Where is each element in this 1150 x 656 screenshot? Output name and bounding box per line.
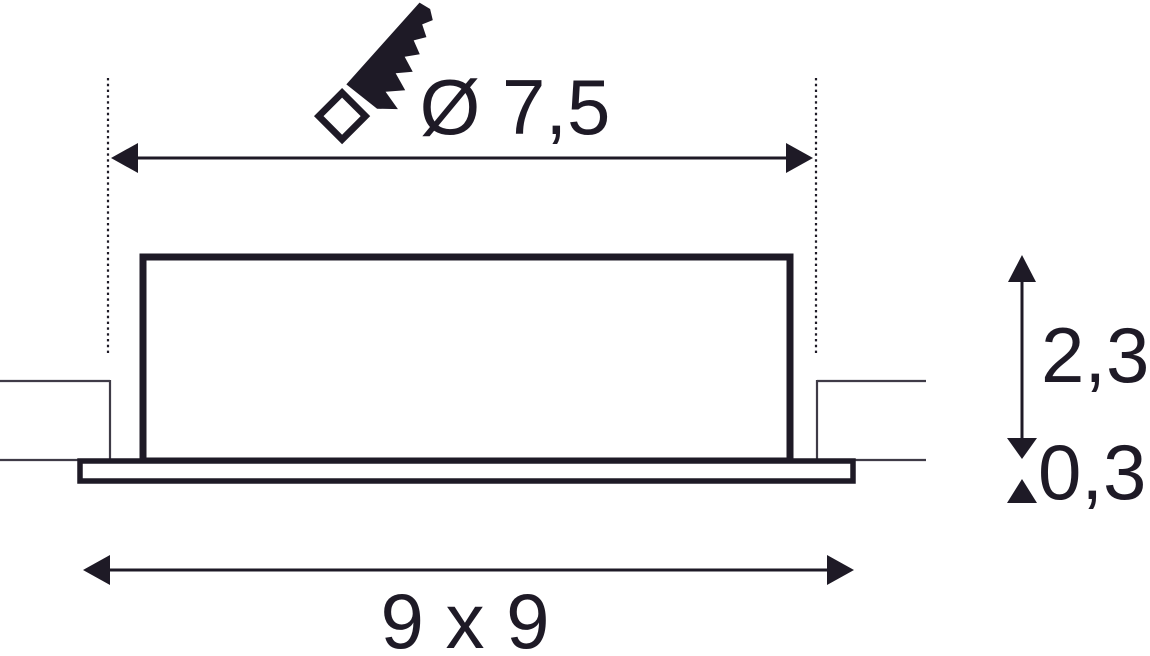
outer-size-label: 9 x 9 — [380, 577, 549, 656]
drawing-canvas: Ø 7,5 2,3 0,3 9 x 9 — [0, 0, 1150, 656]
arrowhead-left-icon — [111, 143, 138, 173]
cutout-diameter-label: Ø 7,5 — [420, 63, 611, 151]
dim-outer-size: 9 x 9 — [83, 555, 854, 656]
housing-outline — [143, 257, 790, 461]
housing-height-label: 2,3 — [1041, 311, 1149, 399]
arrowhead-down-icon — [1007, 438, 1037, 459]
flange-thickness-label: 0,3 — [1038, 428, 1146, 516]
saw-handle — [319, 93, 366, 140]
dim-cutout-diameter: Ø 7,5 — [111, 63, 813, 173]
arrowhead-up-icon — [1008, 255, 1036, 282]
flange-outline — [80, 461, 853, 481]
dimension-drawing: Ø 7,5 2,3 0,3 9 x 9 — [0, 0, 1150, 656]
arrowhead-right-icon — [827, 555, 854, 585]
arrowhead-right-icon — [786, 143, 813, 173]
flange-arrowhead-up-icon — [1007, 479, 1037, 503]
arrowhead-left-icon — [83, 555, 110, 585]
